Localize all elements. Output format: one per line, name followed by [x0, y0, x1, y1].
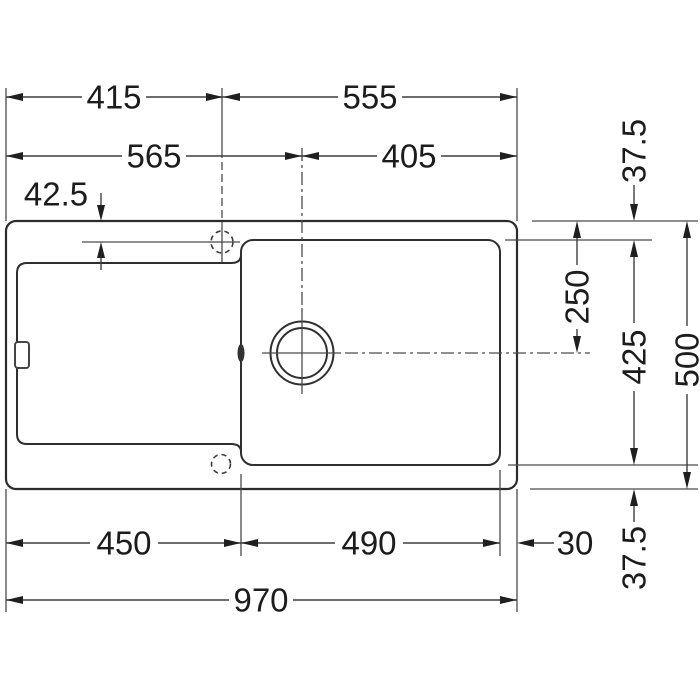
dim-565: 565: [6, 138, 302, 175]
dim-405: 405: [302, 138, 517, 175]
tap-hole-bottom: [212, 455, 231, 474]
dim-970: 970: [6, 582, 517, 619]
dim-30: 30: [517, 525, 593, 562]
arrowhead: [285, 152, 302, 160]
dim-490: 490: [241, 525, 500, 562]
arrowhead: [630, 489, 638, 506]
sink-dimension-drawing: 415 555 565 405 42.5 37.5 250: [0, 0, 700, 700]
bowl-edge-notch: [238, 344, 245, 362]
dim-label-rim-right: 30: [557, 525, 594, 562]
arrowhead: [241, 539, 258, 547]
drainboard-outline: [17, 255, 241, 452]
sink-outer-rim: [6, 221, 517, 489]
dim-250: 250: [559, 221, 596, 353]
dim-label-bowl-depth: 425: [616, 329, 653, 384]
arrowhead: [573, 221, 581, 238]
dim-label-top-right: 555: [342, 79, 397, 116]
arrowhead: [500, 152, 517, 160]
dim-37-5-top: 37.5: [616, 119, 653, 221]
arrowhead: [483, 539, 500, 547]
arrowhead: [630, 204, 638, 221]
arrowhead: [206, 93, 223, 101]
dim-425: 425: [616, 240, 653, 465]
arrowhead: [630, 240, 638, 257]
dim-label-tap-offset: 42.5: [24, 176, 88, 213]
dim-label-top-left: 415: [86, 79, 141, 116]
arrowhead: [683, 221, 691, 238]
dim-label-center-left: 565: [126, 138, 181, 175]
dim-555: 555: [223, 79, 517, 116]
arrowhead: [97, 205, 105, 221]
dim-label-bottom-left: 450: [96, 525, 151, 562]
dim-500: 500: [669, 221, 700, 489]
dim-label-center-depth: 250: [559, 269, 596, 324]
arrowhead: [500, 93, 517, 101]
arrowhead: [683, 472, 691, 489]
arrowhead: [6, 539, 23, 547]
arrowhead: [224, 539, 241, 547]
dim-label-rim-bottom: 37.5: [616, 526, 653, 590]
dim-42-5: 42.5: [24, 176, 105, 271]
dim-label-rim-top: 37.5: [616, 119, 653, 183]
dim-37-5-bottom: 37.5: [616, 489, 653, 590]
arrowhead: [302, 152, 319, 160]
arrowhead: [630, 448, 638, 465]
arrowhead: [97, 242, 105, 258]
arrowhead: [223, 93, 240, 101]
dim-label-overall-depth: 500: [669, 332, 700, 387]
dim-label-center-right: 405: [381, 138, 436, 175]
arrowhead: [517, 539, 534, 547]
arrowhead: [6, 93, 23, 101]
overflow-slot: [15, 342, 29, 368]
sink-outline-group: [6, 221, 517, 489]
dim-label-bowl-width: 490: [341, 525, 396, 562]
arrowhead: [500, 596, 517, 604]
arrowhead: [6, 152, 23, 160]
arrowhead: [573, 336, 581, 353]
drawing-svg: 415 555 565 405 42.5 37.5 250: [0, 0, 700, 700]
dim-415: 415: [6, 79, 223, 116]
dim-450: 450: [6, 525, 241, 562]
arrowhead: [6, 596, 23, 604]
dim-label-overall-width: 970: [233, 582, 288, 619]
